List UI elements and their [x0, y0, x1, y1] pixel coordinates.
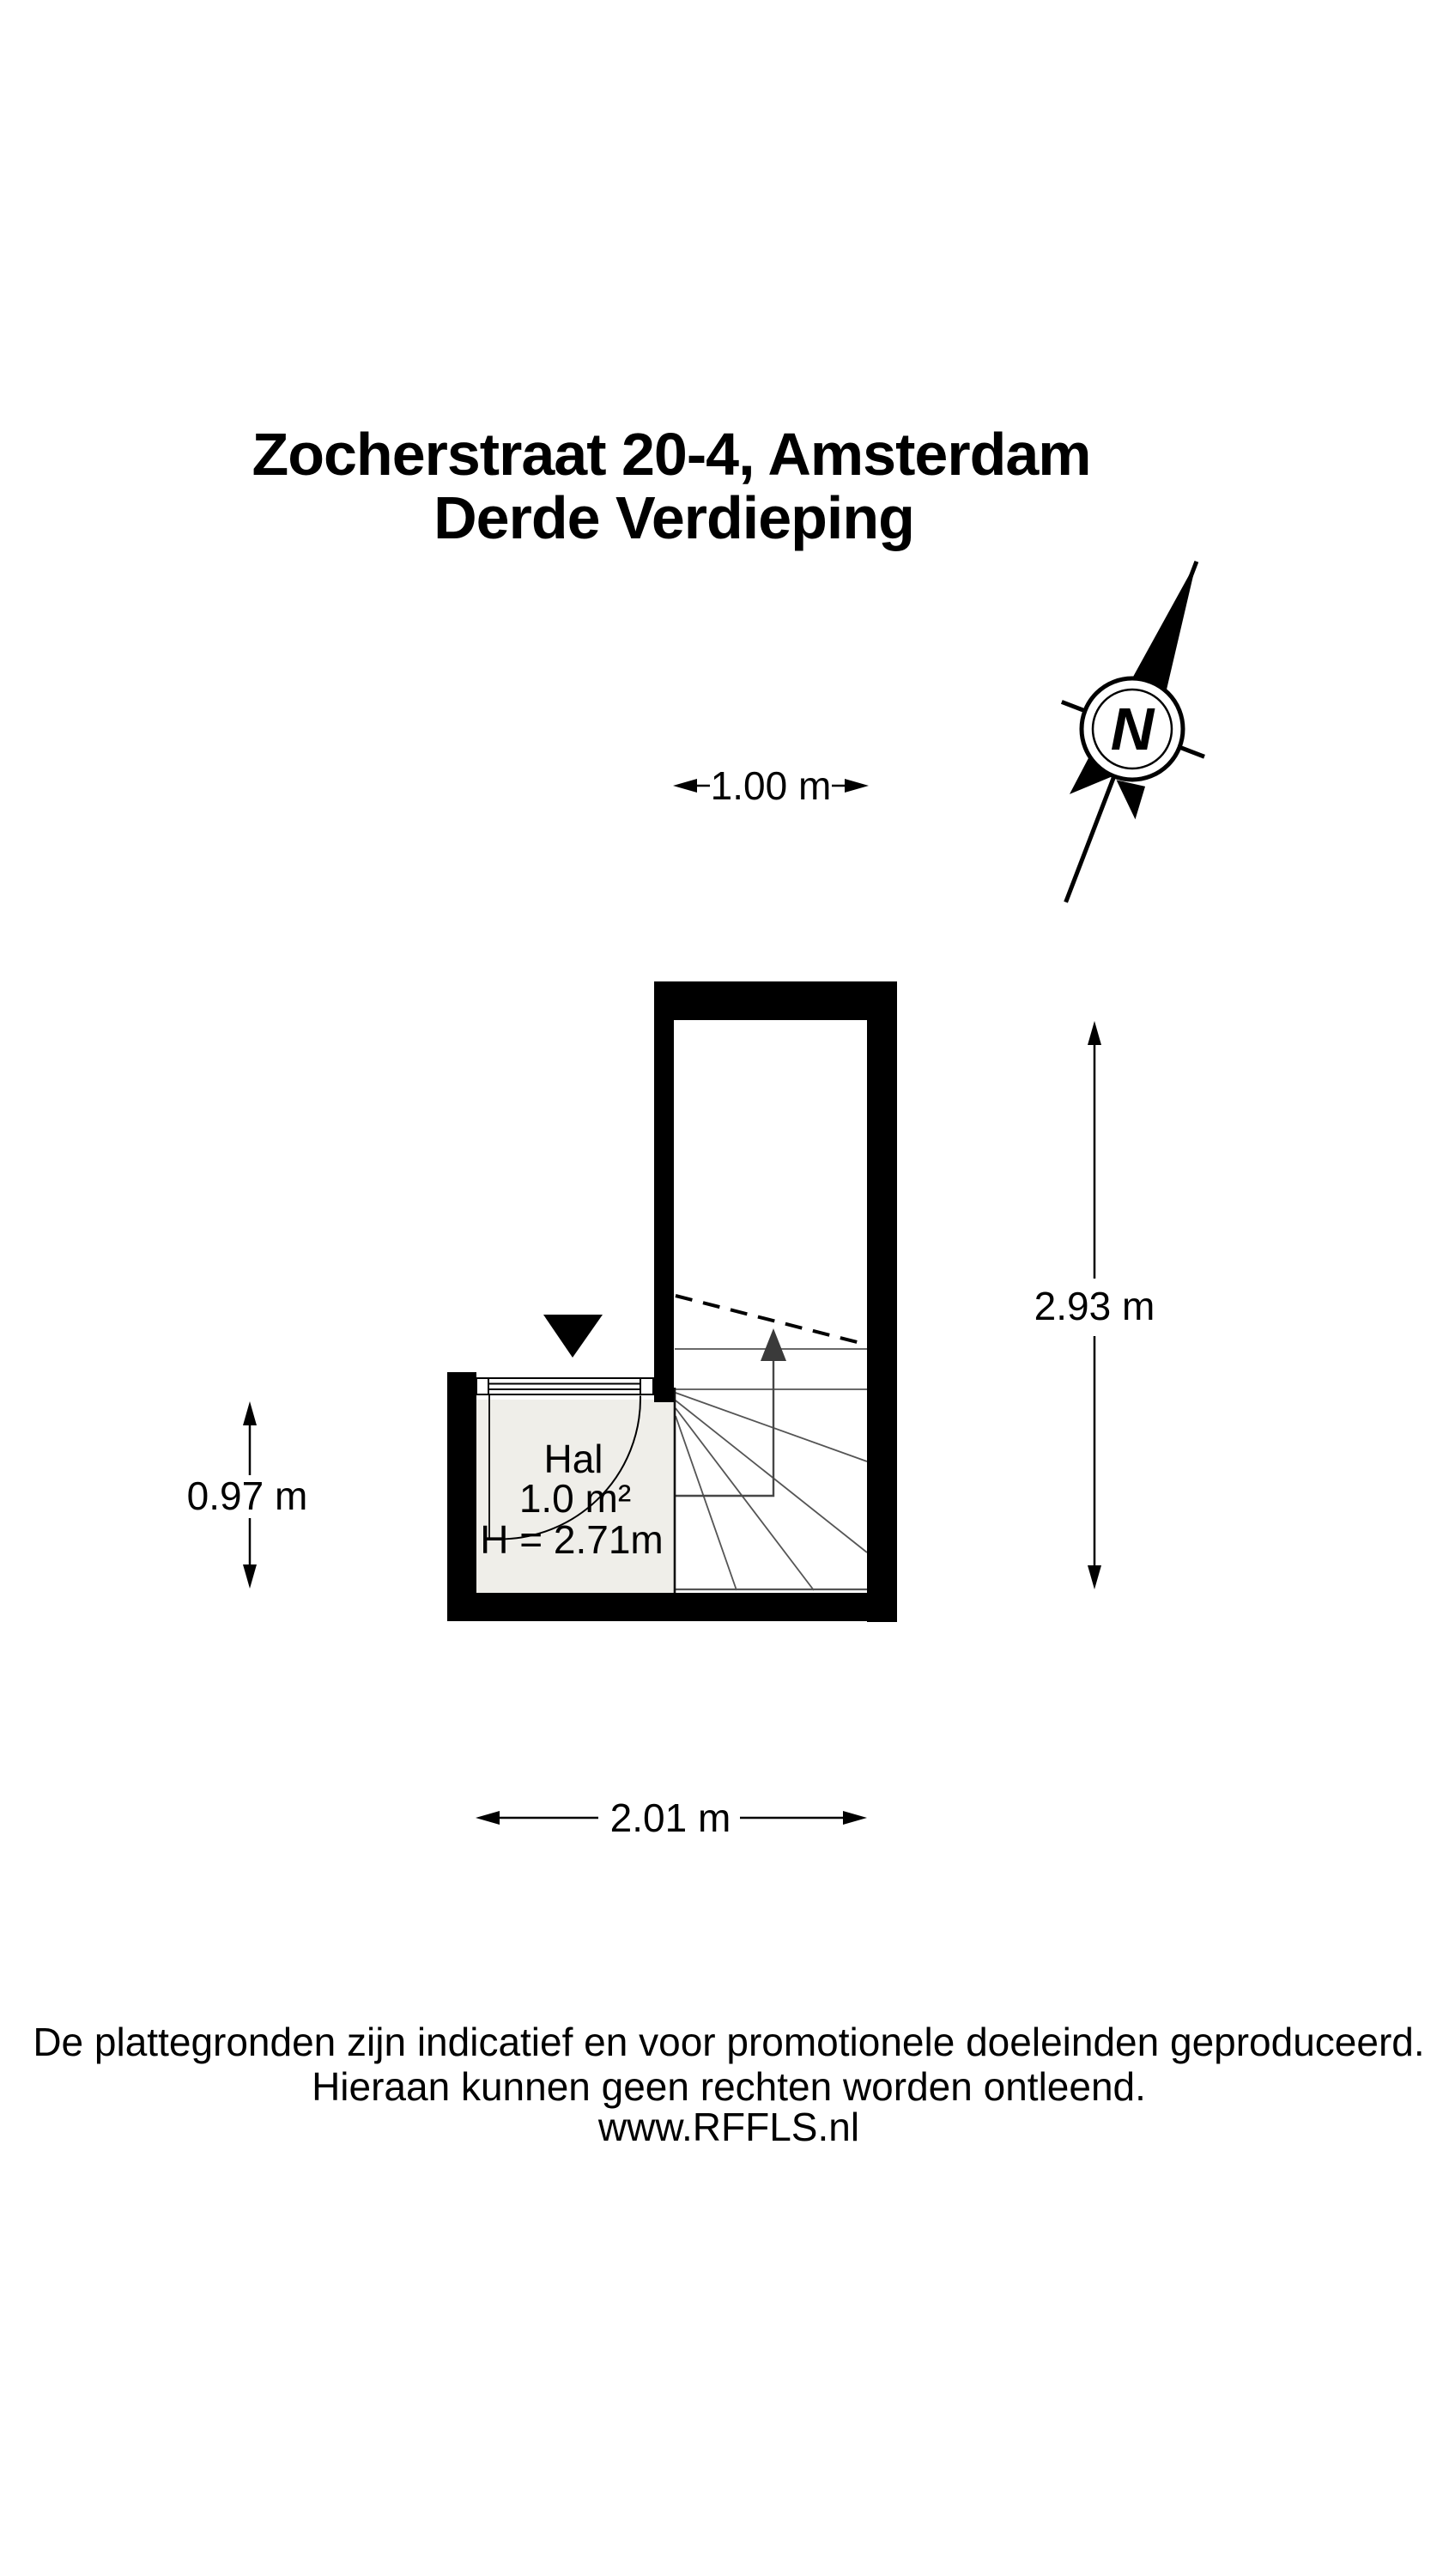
svg-text:Hal: Hal — [543, 1437, 603, 1481]
svg-text:www.RFFLS.nl: www.RFFLS.nl — [597, 2105, 859, 2149]
svg-text:Hieraan kunnen geen rechten wo: Hieraan kunnen geen rechten worden ontle… — [312, 2064, 1146, 2109]
svg-text:1.0 m²: 1.0 m² — [519, 1476, 631, 1521]
svg-text:De plattegronden zijn indicati: De plattegronden zijn indicatief en voor… — [33, 2020, 1424, 2064]
svg-text:Zocherstraat 20-4, Amsterdam: Zocherstraat 20-4, Amsterdam — [252, 421, 1090, 488]
svg-text:H = 2.71m: H = 2.71m — [480, 1517, 664, 1562]
svg-text:0.97 m: 0.97 m — [187, 1473, 308, 1518]
svg-text:N: N — [1111, 696, 1155, 762]
svg-text:1.00 m: 1.00 m — [711, 763, 832, 808]
svg-text:Derde Verdieping: Derde Verdieping — [433, 484, 914, 551]
svg-text:2.93 m: 2.93 m — [1034, 1284, 1155, 1328]
svg-text:2.01 m: 2.01 m — [610, 1795, 731, 1840]
